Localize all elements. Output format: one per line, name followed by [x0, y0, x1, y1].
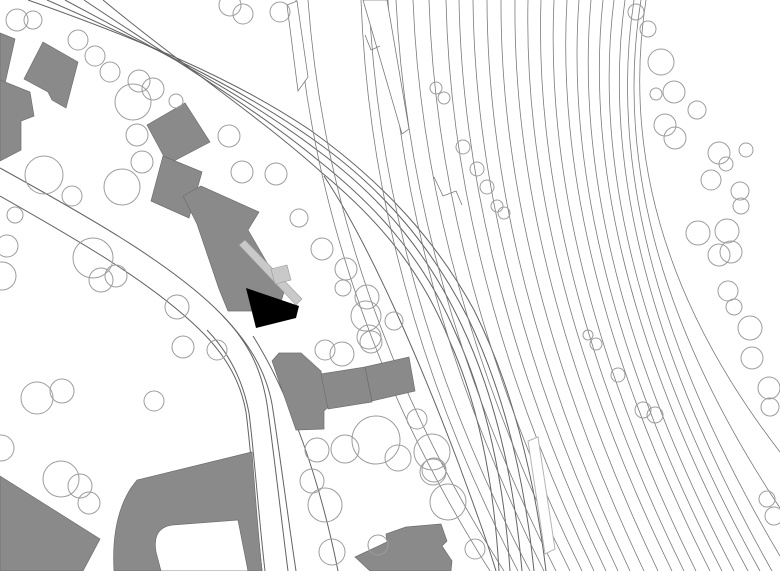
- tree-circle: [470, 162, 484, 176]
- tree-circle: [715, 219, 739, 243]
- tree-circle: [456, 140, 470, 154]
- building-footprint: [24, 42, 78, 108]
- site-plan-canvas: [0, 0, 780, 571]
- tree-circle: [265, 163, 287, 185]
- rail-line: [501, 0, 644, 571]
- tree-circle: [126, 124, 148, 146]
- rail-line: [446, 0, 594, 571]
- platform-wedge: [363, 0, 409, 134]
- rail-line: [553, 0, 696, 571]
- tree-circle: [218, 125, 240, 147]
- tree-circle: [165, 295, 189, 319]
- tree-circle: [720, 241, 742, 263]
- rail-line: [413, 0, 570, 571]
- tree-circle: [85, 46, 105, 66]
- tree-circle: [360, 331, 382, 353]
- tree-circle: [650, 88, 662, 100]
- tree-circle: [765, 507, 780, 525]
- building-footprint: [365, 357, 415, 401]
- tree-circle: [357, 325, 381, 349]
- tree-circle: [21, 382, 53, 414]
- tree-circle: [231, 161, 253, 183]
- rail-line: [588, 0, 734, 571]
- rail-line: [429, 0, 582, 571]
- tree-circle: [219, 0, 241, 16]
- tree-circle: [739, 143, 753, 157]
- building-accent: [271, 265, 291, 284]
- tree-circle: [438, 92, 450, 104]
- rail-line: [388, 0, 544, 571]
- building-footprint: [355, 524, 452, 571]
- tree-circle: [0, 435, 14, 461]
- rail-line: [619, 0, 772, 571]
- tree-circle: [43, 461, 79, 497]
- tree-circle: [335, 258, 357, 280]
- building-footprint: [147, 103, 210, 164]
- tree-circle: [330, 342, 354, 366]
- rail-line: [487, 0, 630, 571]
- tree-circle: [305, 438, 329, 462]
- tree-circle: [25, 156, 63, 194]
- tree-circle: [290, 209, 308, 227]
- tree-circle: [131, 151, 153, 173]
- tree-circle: [708, 244, 730, 266]
- tree-circle: [761, 398, 779, 416]
- tree-circle: [414, 434, 450, 470]
- road-line: [47, 0, 534, 571]
- building-footprint: [272, 353, 328, 430]
- tree-circle: [686, 221, 710, 245]
- tree-circle: [73, 238, 113, 278]
- tree-circle: [7, 207, 23, 223]
- rail-line: [540, 0, 684, 571]
- building-footprint: [0, 476, 100, 571]
- tree-circle: [759, 491, 775, 507]
- tree-circle: [663, 81, 685, 103]
- tree-circle: [68, 30, 88, 50]
- tree-circle: [718, 281, 738, 301]
- tree-circle: [270, 2, 290, 22]
- tree-circle: [708, 142, 730, 164]
- rail-line: [634, 0, 780, 508]
- tree-circle: [315, 340, 335, 360]
- tree-circle: [491, 200, 503, 212]
- tree-circle: [6, 9, 28, 31]
- tree-circle: [407, 409, 427, 429]
- rail-line: [599, 0, 748, 571]
- tree-circle: [738, 316, 762, 340]
- tree-circle: [115, 84, 151, 120]
- tree-circle: [104, 169, 140, 205]
- tree-circle: [78, 492, 100, 514]
- tree-circle: [50, 379, 74, 403]
- building-footprint: [321, 367, 372, 409]
- rail-line: [566, 0, 710, 571]
- tree-circle: [308, 488, 342, 522]
- tree-circle: [731, 182, 749, 200]
- tree-circle: [105, 265, 127, 287]
- building-footprint: [0, 80, 34, 161]
- rail-line: [609, 0, 760, 571]
- tree-circle: [628, 4, 644, 20]
- tree-circle: [335, 280, 351, 296]
- tree-circle: [100, 62, 120, 82]
- tree-circle: [701, 170, 721, 190]
- tree-circle: [480, 180, 494, 194]
- tree-circle: [169, 94, 183, 108]
- tree-circle: [89, 268, 113, 292]
- tree-circle: [352, 416, 400, 464]
- tree-circle: [24, 11, 42, 29]
- tree-circle: [741, 347, 763, 369]
- rail-line: [308, 0, 504, 571]
- tree-circle: [758, 377, 780, 399]
- tree-circle: [688, 101, 706, 119]
- tree-circle: [498, 207, 510, 219]
- tree-circle: [144, 391, 164, 411]
- building-footprint: [114, 452, 262, 571]
- tree-circle: [648, 49, 674, 75]
- tree-circle: [611, 368, 625, 382]
- tree-circle: [128, 70, 150, 92]
- tree-circle: [465, 539, 485, 559]
- site-plan: [0, 0, 780, 571]
- tree-circle: [726, 299, 742, 315]
- building-footprint: [0, 33, 15, 88]
- tree-circle: [172, 336, 194, 358]
- tree-circle: [68, 474, 92, 498]
- tree-circle: [62, 186, 82, 206]
- tree-circle: [331, 435, 359, 463]
- tree-circle: [0, 262, 16, 290]
- tree-circle: [311, 238, 333, 260]
- tree-circle: [300, 469, 324, 493]
- tree-circle: [0, 235, 18, 257]
- tree-circle: [430, 484, 466, 520]
- tree-circle: [207, 340, 227, 360]
